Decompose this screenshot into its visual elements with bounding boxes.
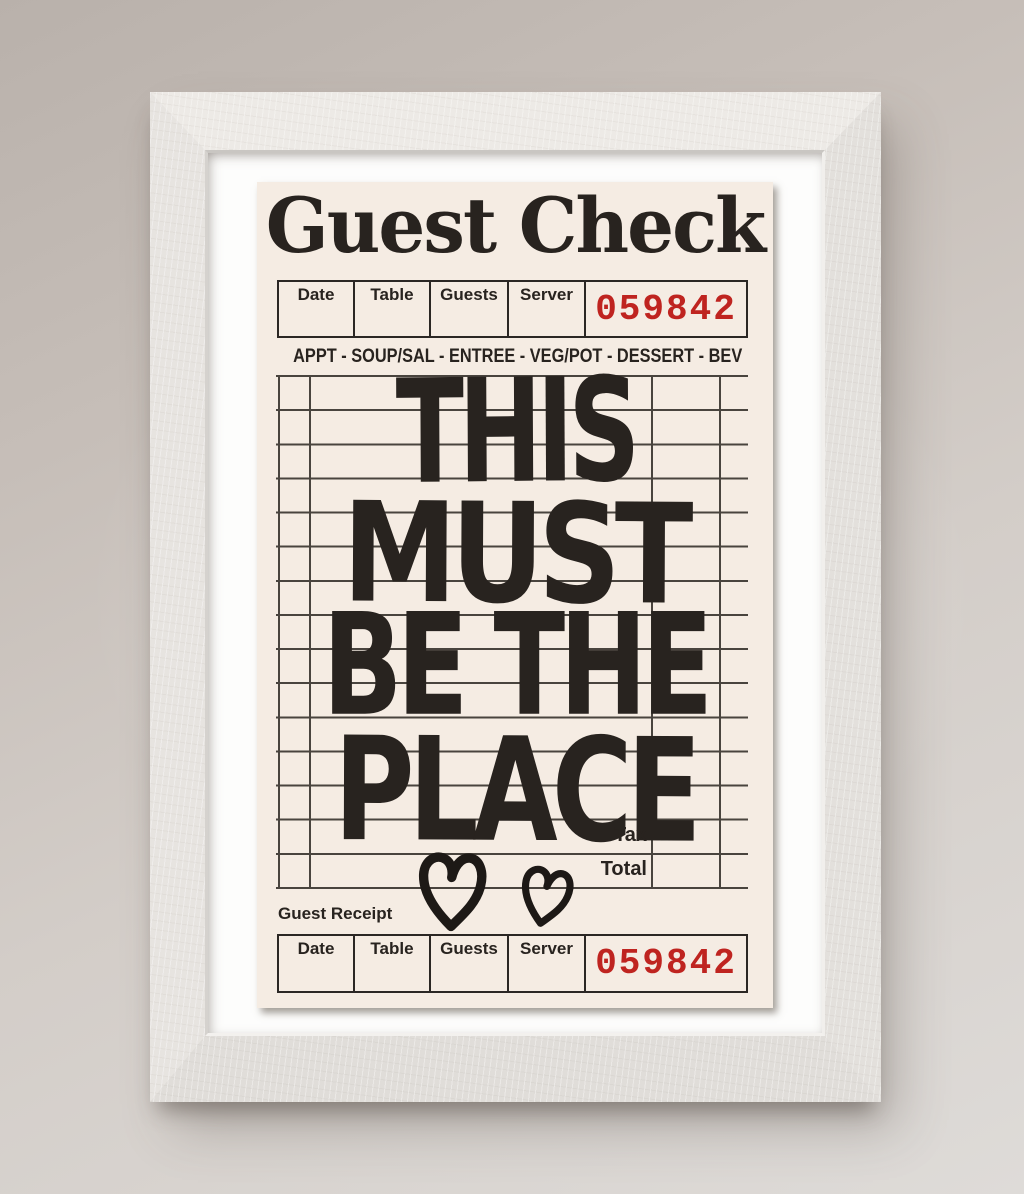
picture-frame: Guest Check Date Table Guests Server 059… bbox=[150, 92, 881, 1102]
grid-vertical-line bbox=[278, 375, 280, 887]
receipt-check-number: 059842 bbox=[586, 936, 746, 991]
receipt-column-server: Server bbox=[509, 936, 586, 991]
tax-label: Tax bbox=[537, 824, 647, 847]
frame-mat: Guest Check Date Table Guests Server 059… bbox=[205, 150, 825, 1036]
check-column-server: Server bbox=[509, 282, 586, 336]
receipt-column-guests: Guests bbox=[431, 936, 509, 991]
heart-icon-large bbox=[415, 844, 487, 934]
receipt-column-date: Date bbox=[279, 936, 355, 991]
guest-receipt-label: Guest Receipt bbox=[278, 904, 392, 924]
poster-title: Guest Check bbox=[265, 188, 766, 264]
check-column-date: Date bbox=[279, 282, 355, 336]
guest-receipt-table: Date Table Guests Server 059842 bbox=[277, 934, 748, 993]
check-column-guests: Guests bbox=[431, 282, 509, 336]
check-column-table: Table bbox=[355, 282, 431, 336]
check-number: 059842 bbox=[586, 282, 746, 336]
heart-icon-small bbox=[512, 858, 578, 932]
guest-check-poster: Guest Check Date Table Guests Server 059… bbox=[257, 182, 773, 1008]
receipt-column-table: Table bbox=[355, 936, 431, 991]
handwritten-phrase-line-4: PLACE bbox=[293, 719, 737, 864]
check-header-table: Date Table Guests Server 059842 bbox=[277, 280, 748, 338]
